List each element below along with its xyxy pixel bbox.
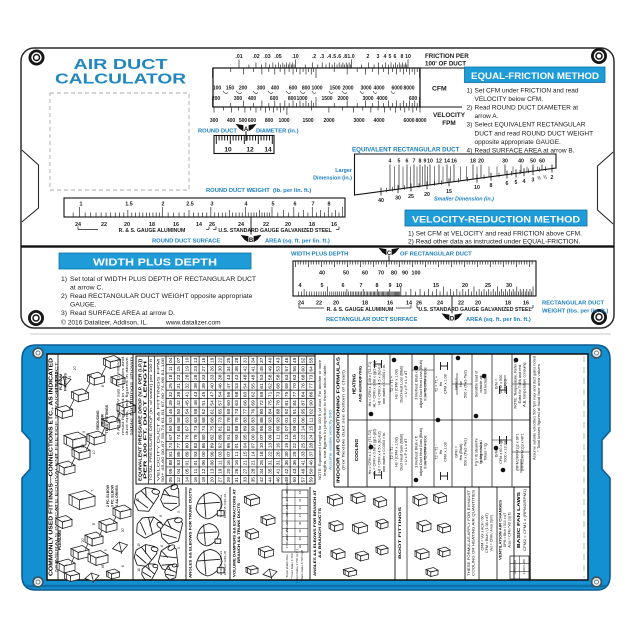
svg-text:500 x (Tw1-Tw2): 500 x (Tw1-Tw2) xyxy=(464,369,468,397)
svg-text:lengths, use figures in propor: lengths, use figures in proportion to th… xyxy=(323,364,327,476)
svg-text:TOTAL PRESSURE DROP (in. of wa: TOTAL PRESSURE DROP (in. of water) per 1… xyxy=(149,358,153,481)
svg-text:.02: .02 xyxy=(252,54,259,60)
svg-text:71: 71 xyxy=(267,391,273,397)
svg-text:10: 10 xyxy=(185,357,191,363)
svg-text:26: 26 xyxy=(276,451,282,457)
svg-text:75: 75 xyxy=(209,426,215,432)
svg-text:89: 89 xyxy=(243,426,249,432)
svg-text:2000: 2000 xyxy=(323,118,334,124)
svg-text:88: 88 xyxy=(168,460,174,466)
svg-text:30: 30 xyxy=(298,521,302,525)
svg-text:78: 78 xyxy=(276,400,282,406)
svg-text:6: 6 xyxy=(342,283,345,289)
svg-text:66: 66 xyxy=(176,426,182,432)
svg-text:30: 30 xyxy=(502,159,508,165)
svg-text:18: 18 xyxy=(362,301,368,307)
svg-text:37: 37 xyxy=(259,357,265,363)
svg-text:Select EQUIVALENT RECTANGULAR: Select EQUIVALENT RECTANGULAR xyxy=(475,122,586,129)
svg-text:45: 45 xyxy=(185,400,191,406)
svg-text:FRICTION PER: FRICTION PER xyxy=(425,53,469,60)
svg-text:BOOT FITTINGS: BOOT FITTINGS xyxy=(397,506,402,559)
svg-text:73: 73 xyxy=(309,374,315,380)
svg-text:Duct Heat Gain (Btuh): Duct Heat Gain (Btuh) xyxy=(399,433,403,471)
svg-text:61: 61 xyxy=(209,409,215,415)
svg-text:55: 55 xyxy=(251,383,257,389)
svg-text:63: 63 xyxy=(193,417,199,423)
svg-text:Set total of WIDTH PLUS DEPTH: Set total of WIDTH PLUS DEPTH OF RECTANG… xyxy=(70,276,256,283)
svg-text:51: 51 xyxy=(201,400,207,406)
svg-text:20': 20' xyxy=(81,537,85,542)
svg-text:* Back Ratio 1:700 sq ft: * Back Ratio 1:700 sq ft xyxy=(300,550,304,582)
svg-text:FITTINGS: FITTINGS xyxy=(63,373,68,391)
svg-text:DIAMETER (in.): DIAMETER (in.) xyxy=(256,129,299,135)
svg-text:03: 03 xyxy=(218,451,224,457)
svg-text:20: 20 xyxy=(462,283,468,289)
svg-text:46: 46 xyxy=(276,477,282,483)
svg-text:600: 600 xyxy=(289,86,298,92)
svg-text:15': 15' xyxy=(55,429,59,434)
svg-text:11: 11 xyxy=(218,460,224,465)
svg-text:58: 58 xyxy=(276,374,282,380)
svg-text:39: 39 xyxy=(168,400,174,406)
svg-text:22: 22 xyxy=(316,301,322,307)
svg-text:36: 36 xyxy=(298,537,302,541)
svg-text:400: 400 xyxy=(227,118,236,124)
svg-text:WEIGHT (lbs. per lin. ft.): WEIGHT (lbs. per lin. ft.) xyxy=(542,309,608,315)
svg-text:EQUIVALENT RECTANGULAR DUCT: EQUIVALENT RECTANGULAR DUCT xyxy=(352,147,460,154)
svg-text:Read SURFACE AREA at arrow B.: Read SURFACE AREA at arrow B. xyxy=(475,147,575,154)
svg-text:9: 9 xyxy=(389,283,392,289)
svg-text:6: 6 xyxy=(294,202,297,208)
svg-text:60: 60 xyxy=(168,426,174,432)
svg-text:54: 54 xyxy=(209,400,215,406)
svg-text:° Total losses figured at hood: ° Total losses figured at hood face area… xyxy=(537,364,541,452)
svg-text:10: 10 xyxy=(259,443,265,449)
svg-text:Area = CFM / Vel (sq ft): Area = CFM / Vel (sq ft) xyxy=(508,512,512,548)
svg-text:VENTILATION AIR CHANGES: VENTILATION AIR CHANGES xyxy=(499,499,503,560)
svg-text:3 Method: Btuh x ft: 3 Method: Btuh x ft xyxy=(414,367,418,399)
svg-text:6: 6 xyxy=(160,545,164,547)
svg-text:60: 60 xyxy=(362,271,368,277)
svg-text:R. & S. GAUGE ALUMINUM: R. & S. GAUGE ALUMINUM xyxy=(119,228,186,234)
svg-text:28: 28 xyxy=(309,443,315,449)
svg-text:25: 25 xyxy=(408,194,414,200)
svg-text:28: 28 xyxy=(234,357,240,363)
svg-text:.4: .4 xyxy=(327,54,331,60)
svg-text:Hs = CFM x 1.08 x (T2-T1): Hs = CFM x 1.08 x (T2-T1) xyxy=(368,361,372,406)
svg-text:DUCT and read ROUND DUCT WEIGH: DUCT and read ROUND DUCT WEIGHT xyxy=(475,130,594,137)
svg-text:25': 25' xyxy=(55,505,59,510)
svg-text:39: 39 xyxy=(176,391,182,397)
svg-text:11: 11 xyxy=(276,434,282,439)
svg-text:NOTE: Equivalent Lengths for 1: NOTE: Equivalent Lengths for 100 ft (of … xyxy=(318,360,322,480)
svg-text:07: 07 xyxy=(176,357,182,363)
svg-text:5: 5 xyxy=(398,159,401,165)
svg-text:33: 33 xyxy=(300,451,306,457)
svg-text:46: 46 xyxy=(218,383,224,389)
svg-text:14: 14 xyxy=(251,451,257,457)
svg-text:( Duct Ratio 1:700 sq ft ): ( Duct Ratio 1:700 sq ft ) xyxy=(295,549,299,583)
svg-text:41: 41 xyxy=(300,460,306,466)
svg-text:7: 7 xyxy=(312,202,315,208)
svg-text:47: 47 xyxy=(209,391,215,397)
svg-text:00: 00 xyxy=(251,434,257,440)
svg-text:6000: 6000 xyxy=(403,118,414,124)
svg-text:00: 00 xyxy=(201,451,207,457)
svg-text:9: 9 xyxy=(424,159,427,165)
svg-text:6': 6' xyxy=(121,564,125,567)
svg-text:27: 27 xyxy=(243,468,249,474)
svg-text:77: 77 xyxy=(243,409,249,415)
svg-text:38: 38 xyxy=(234,366,240,372)
svg-text:93: 93 xyxy=(193,451,199,457)
svg-text:78: 78 xyxy=(193,434,199,440)
svg-text:50: 50 xyxy=(343,271,349,277)
svg-text:57: 57 xyxy=(218,400,224,406)
svg-text:26: 26 xyxy=(234,468,240,474)
svg-text:12: 12 xyxy=(201,468,207,474)
svg-text:CFM: CFM xyxy=(432,86,447,93)
svg-text:25: 25 xyxy=(300,443,306,449)
svg-text:ROUND DUCT SURFACE: ROUND DUCT SURFACE xyxy=(152,239,220,245)
svg-text:35: 35 xyxy=(267,468,273,474)
svg-text:B: B xyxy=(249,238,254,244)
svg-text:30: 30 xyxy=(284,451,290,457)
svg-text:43: 43 xyxy=(193,391,199,397)
svg-text:31: 31 xyxy=(243,357,249,363)
svg-text:Hs = CFM x 1.08 x (T1-T2): Hs = CFM x 1.08 x (T1-T2) xyxy=(368,429,372,474)
svg-text:80: 80 xyxy=(259,409,265,415)
svg-text:21: 21 xyxy=(251,460,257,466)
svg-text:78: 78 xyxy=(226,417,232,423)
svg-text:5: 5 xyxy=(104,549,108,551)
svg-text:58: 58 xyxy=(176,417,182,423)
svg-text:8': 8' xyxy=(101,384,105,387)
svg-text:1000: 1000 xyxy=(311,86,322,92)
svg-text:14: 14 xyxy=(264,147,272,154)
svg-text:from T2 CFM x 1.08: from T2 CFM x 1.08 xyxy=(424,435,428,468)
svg-text:15: 15 xyxy=(176,366,182,372)
svg-text:07: 07 xyxy=(251,443,257,449)
svg-text:from T2 CFM x 1.08: from T2 CFM x 1.08 xyxy=(424,367,428,400)
svg-text:20: 20 xyxy=(424,192,430,198)
svg-text:83: 83 xyxy=(243,417,249,423)
svg-text:18: 18 xyxy=(505,301,511,307)
svg-text:73: 73 xyxy=(193,426,199,432)
svg-text:96: 96 xyxy=(259,426,265,432)
svg-text:CALCULATOR: CALCULATOR xyxy=(55,72,187,88)
svg-text:U.S. STANDARD GAUGE GALVANIZED: U.S. STANDARD GAUGE GALVANIZED STEEL xyxy=(218,228,332,234)
svg-text:73: 73 xyxy=(276,391,282,397)
svg-text:27: 27 xyxy=(298,514,302,518)
svg-text:53: 53 xyxy=(168,417,174,423)
svg-text:www.datalizer.com: www.datalizer.com xyxy=(165,320,221,327)
svg-text:63: 63 xyxy=(284,374,290,380)
svg-text:48: 48 xyxy=(284,477,290,483)
svg-text:* Duct Ratio 1:700: * Duct Ratio 1:700 xyxy=(290,553,294,578)
svg-text:05: 05 xyxy=(168,477,174,483)
svg-text:39: 39 xyxy=(298,545,302,549)
svg-text:08: 08 xyxy=(292,426,298,432)
svg-text:84: 84 xyxy=(292,400,298,406)
svg-text:78: 78 xyxy=(234,417,240,423)
svg-text:8: 8 xyxy=(419,159,422,165)
svg-text:19: 19 xyxy=(185,366,191,372)
svg-text:TRUNK: TRUNK xyxy=(101,413,105,426)
svg-text:01: 01 xyxy=(193,460,199,466)
svg-text:06: 06 xyxy=(300,417,306,423)
svg-text:60: 60 xyxy=(539,159,545,165)
svg-text:19: 19 xyxy=(284,443,290,449)
svg-text:12: 12 xyxy=(246,147,254,154)
svg-text:1.5: 1.5 xyxy=(125,202,133,208)
svg-text:73: 73 xyxy=(234,409,240,415)
svg-text:28: 28 xyxy=(185,374,191,380)
svg-text:47: 47 xyxy=(226,383,232,389)
svg-text:2): 2) xyxy=(61,293,67,300)
svg-text:92: 92 xyxy=(218,443,224,449)
svg-text:600: 600 xyxy=(248,118,257,124)
svg-text:55: 55 xyxy=(309,357,315,363)
svg-text:36: 36 xyxy=(284,460,290,466)
svg-text:82: 82 xyxy=(226,426,232,432)
svg-text:68: 68 xyxy=(276,383,282,389)
svg-text:CFM x 1.08: CFM x 1.08 xyxy=(444,442,448,461)
svg-text:1500: 1500 xyxy=(321,96,332,102)
svg-text:63: 63 xyxy=(234,400,240,406)
svg-text:VELOCITY below CFM.: VELOCITY below CFM. xyxy=(475,96,544,103)
svg-text:34: 34 xyxy=(226,366,232,372)
svg-text:300: 300 xyxy=(210,118,219,124)
svg-text:2840+27 3240+30: 2840+27 3240+30 xyxy=(223,550,227,575)
svg-text:adjust Duct Heat Gain (Btuh): adjust Duct Heat Gain (Btuh) xyxy=(419,427,423,476)
svg-text:93: 93 xyxy=(234,434,240,440)
svg-text:(lb. per lin. ft.): (lb. per lin. ft.) xyxy=(273,188,311,194)
svg-text:16: 16 xyxy=(276,443,282,449)
svg-text:45': 45' xyxy=(101,563,105,568)
svg-text:Duct Heat Loss (Btuh): Duct Heat Loss (Btuh) xyxy=(399,365,403,403)
svg-text:40: 40 xyxy=(209,383,215,389)
svg-text:800: 800 xyxy=(288,96,297,102)
svg-text:37: 37 xyxy=(309,451,315,457)
svg-text:1): 1) xyxy=(467,88,473,95)
svg-text:3 PC. ELBOW: 3 PC. ELBOW xyxy=(111,484,115,507)
svg-text:28: 28 xyxy=(193,374,199,380)
svg-text:3000: 3000 xyxy=(360,86,371,92)
svg-text:21: 21 xyxy=(298,498,302,502)
svg-text:46: 46 xyxy=(284,357,290,363)
svg-text:Hw (Btuh): Hw (Btuh) xyxy=(459,443,463,460)
svg-text:Read RECTANGULAR DUCT WEIGHT o: Read RECTANGULAR DUCT WEIGHT opposite ap… xyxy=(70,293,253,300)
svg-text:Hs / (CFM x 1.08): Hs / (CFM x 1.08) xyxy=(395,368,399,398)
svg-text:01: 01 xyxy=(284,417,290,423)
svg-text:15: 15 xyxy=(137,543,141,547)
svg-text:16: 16 xyxy=(226,460,232,466)
svg-text:HL = CFM x 0.68 x (gr1-gr2): HL = CFM x 0.68 x (gr1-gr2) xyxy=(373,428,377,476)
svg-text:adjust Duct Heat Loss (Btuh): adjust Duct Heat Loss (Btuh) xyxy=(419,359,423,408)
svg-text:22: 22 xyxy=(101,222,107,228)
svg-text:10: 10 xyxy=(224,147,232,154)
svg-text:22: 22 xyxy=(218,357,224,363)
svg-text:31: 31 xyxy=(267,460,273,466)
svg-text:Read ROUND DUCT DIAMETER at: Read ROUND DUCT DIAMETER at xyxy=(475,105,579,112)
svg-text:Ht = CFM x 4.5 x (h1-h2): Ht = CFM x 4.5 x (h1-h2) xyxy=(377,431,381,473)
svg-text:200: 200 xyxy=(212,96,221,102)
svg-text:6: 6 xyxy=(506,181,509,187)
svg-text:34: 34 xyxy=(259,468,265,474)
svg-text:48: 48 xyxy=(193,400,199,406)
svg-text:85: 85 xyxy=(176,451,182,457)
svg-text:67: 67 xyxy=(185,426,191,432)
svg-text:600: 600 xyxy=(409,96,418,102)
svg-text:Truck Width Plus: Truck Width Plus xyxy=(285,554,289,578)
svg-text:T2 = T1 -: T2 = T1 - xyxy=(434,444,438,460)
svg-text:44: 44 xyxy=(267,477,273,483)
svg-text:CFM x 1.08: CFM x 1.08 xyxy=(444,374,448,393)
svg-text:95: 95 xyxy=(226,443,232,449)
svg-text:13: 13 xyxy=(284,434,290,440)
svg-text:56: 56 xyxy=(292,366,298,372)
svg-text:73: 73 xyxy=(218,417,224,423)
svg-text:Hs: Hs xyxy=(439,450,443,455)
svg-text:VELOCITY-REDUCTION METHOD: VELOCITY-REDUCTION METHOD xyxy=(412,215,580,226)
svg-text:33: 33 xyxy=(201,374,207,380)
svg-text:5: 5 xyxy=(389,54,392,60)
svg-text:22: 22 xyxy=(458,301,464,307)
svg-text:22: 22 xyxy=(292,443,298,449)
svg-text:1740+22: 1740+22 xyxy=(285,536,289,548)
svg-text:61: 61 xyxy=(259,383,265,389)
svg-text:1500: 1500 xyxy=(329,86,340,92)
svg-text:BRANCH && TRUNK DUCTS: BRANCH && TRUNK DUCTS xyxy=(237,502,241,563)
svg-text:3: 3 xyxy=(211,202,214,208)
svg-text:18: 18 xyxy=(168,374,174,380)
svg-text:WIDTH PLUS DEPTH: WIDTH PLUS DEPTH xyxy=(291,252,348,258)
svg-text:04: 04 xyxy=(176,468,182,474)
svg-text:REDUCING: REDUCING xyxy=(96,410,100,429)
svg-text:86: 86 xyxy=(309,391,315,397)
svg-text:50: 50 xyxy=(292,477,298,483)
svg-text:.5: .5 xyxy=(332,54,336,60)
svg-text:7: 7 xyxy=(91,489,95,491)
svg-text:8: 8 xyxy=(490,183,493,189)
svg-text:69: 69 xyxy=(259,391,265,397)
svg-text:26: 26 xyxy=(209,366,215,372)
svg-text:11: 11 xyxy=(234,451,240,456)
svg-text:16: 16 xyxy=(387,301,393,307)
svg-text:GPM =: GPM = xyxy=(454,446,458,458)
svg-text:43: 43 xyxy=(276,357,282,363)
svg-text:3: 3 xyxy=(532,178,535,184)
svg-text:4-100 6-350: 4-100 6-350 xyxy=(522,559,526,575)
svg-text:25: 25 xyxy=(226,357,232,363)
svg-text:400: 400 xyxy=(271,86,280,92)
svg-text:32: 32 xyxy=(168,391,174,397)
svg-text:93: 93 xyxy=(176,460,182,466)
svg-text:49: 49 xyxy=(300,468,306,474)
svg-text:30': 30' xyxy=(81,443,85,448)
svg-text:VOLUME DAMPERS && EXTRACTORS A: VOLUME DAMPERS && EXTRACTORS AT xyxy=(233,488,237,577)
svg-text:20: 20 xyxy=(226,468,232,474)
svg-text:= U x P x L x dT: = U x P x L x dT xyxy=(404,438,408,465)
svg-text:4): 4) xyxy=(467,147,473,154)
svg-text:48: 48 xyxy=(251,374,257,380)
svg-text:COOLING: COOLING xyxy=(354,439,360,462)
svg-text:58: 58 xyxy=(193,409,199,415)
svg-text:53: 53 xyxy=(234,383,240,389)
svg-text:8: 8 xyxy=(82,431,86,433)
svg-text:200: 200 xyxy=(239,86,248,92)
svg-text:14: 14 xyxy=(185,477,191,483)
svg-text:59: 59 xyxy=(309,477,315,483)
svg-text:83: 83 xyxy=(193,443,199,449)
svg-text:8000: 8000 xyxy=(403,86,414,92)
svg-text:100: 100 xyxy=(412,271,421,277)
svg-text:58: 58 xyxy=(234,391,240,397)
svg-text:OF RECTANGULAR DUCT: OF RECTANGULAR DUCT xyxy=(400,252,472,258)
svg-text:50: 50 xyxy=(530,159,536,165)
svg-text:84: 84 xyxy=(267,409,273,415)
svg-text:64: 64 xyxy=(309,366,315,372)
svg-text:970.3: 970.3 xyxy=(504,379,508,388)
svg-text:100: 100 xyxy=(213,86,222,92)
svg-text:43: 43 xyxy=(234,374,240,380)
svg-text:ANGLES && ELBOWS FOR TRUNK DUC: ANGLES && ELBOWS FOR TRUNK DUCTS xyxy=(188,488,193,578)
svg-text:opposite appropriate GAUGE.: opposite appropriate GAUGE. xyxy=(475,139,562,146)
svg-text:CFM = Btuh / (1.08 x dT): CFM = Btuh / (1.08 x dT) xyxy=(485,513,489,553)
svg-text:RECTANGULAR DUCT SURFACE: RECTANGULAR DUCT SURFACE xyxy=(326,317,417,323)
svg-text:EQUAL-FRICTION METHOD: EQUAL-FRICTION METHOD xyxy=(471,71,599,82)
svg-text:300: 300 xyxy=(234,96,243,102)
svg-text:74: 74 xyxy=(201,426,207,432)
svg-text:.05: .05 xyxy=(274,54,281,60)
svg-text:42: 42 xyxy=(243,366,249,372)
svg-text:15: 15 xyxy=(292,434,298,440)
svg-text:29: 29 xyxy=(292,451,298,457)
svg-text:89: 89 xyxy=(209,443,215,449)
svg-text:13: 13 xyxy=(267,443,273,449)
svg-text:Hs / (CFM x 1.08): Hs / (CFM x 1.08) xyxy=(395,436,399,466)
svg-text:Read SURFACE AREA at arrow D.: Read SURFACE AREA at arrow D. xyxy=(70,310,175,317)
svg-text:14: 14 xyxy=(444,159,450,165)
svg-text:RPM GPM: RPM GPM xyxy=(513,560,517,574)
svg-text:01: 01 xyxy=(234,443,240,449)
svg-text:86: 86 xyxy=(201,443,207,449)
svg-text:2: 2 xyxy=(551,175,554,181)
svg-text:AND HUMIDIFYING: AND HUMIDIFYING xyxy=(358,366,363,402)
svg-text:Totals = tg: Totals = tg xyxy=(484,443,488,460)
svg-text:63: 63 xyxy=(292,374,298,380)
svg-text:8: 8 xyxy=(328,202,331,208)
svg-text:5: 5 xyxy=(321,283,324,289)
svg-text:04: 04 xyxy=(243,443,249,449)
svg-text:72: 72 xyxy=(259,400,265,406)
svg-text:2000: 2000 xyxy=(342,86,353,92)
svg-text:7000 x 13.34: 7000 x 13.34 xyxy=(504,441,508,463)
svg-text:15: 15 xyxy=(433,283,439,289)
svg-text:14: 14 xyxy=(300,426,306,432)
svg-text:74: 74 xyxy=(176,434,182,440)
svg-text:½: ½ xyxy=(537,175,541,180)
svg-text:8': 8' xyxy=(92,522,96,525)
svg-text:27: 27 xyxy=(201,366,207,372)
svg-text:30': 30' xyxy=(121,527,125,532)
svg-text:36: 36 xyxy=(292,460,298,466)
svg-text:68: 68 xyxy=(209,417,215,423)
svg-text:57: 57 xyxy=(300,477,306,483)
svg-text:15: 15 xyxy=(446,189,452,195)
svg-text:15: 15 xyxy=(309,426,315,432)
